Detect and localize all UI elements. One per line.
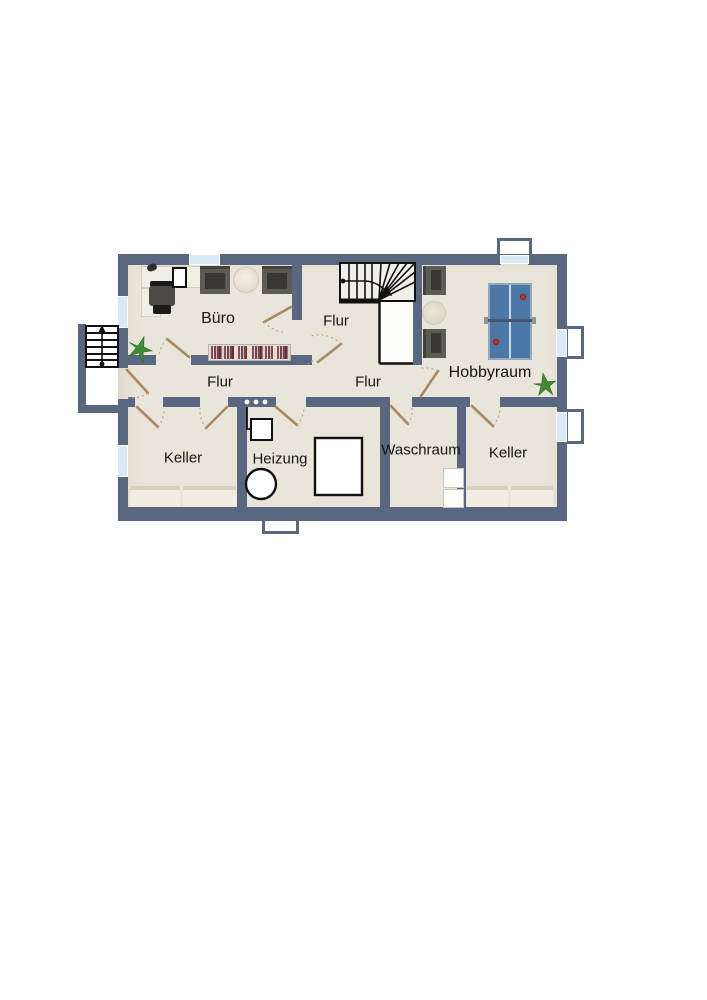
room-label-hobbyraum: Hobbyraum [449,364,532,382]
plant-icon [125,333,156,364]
doors [127,307,500,428]
meter-panel-dots [245,400,268,405]
room-label-heizung: Heizung [252,451,307,468]
boiler-icon [246,469,276,499]
room-label-flur-top: Flur [323,313,349,330]
room-label-keller-east: Keller [489,445,527,462]
room-label-flur-east: Flur [355,374,381,391]
room-label-buero: Büro [201,310,235,328]
plant-icon [532,371,558,397]
room-label-keller-west: Keller [164,450,202,467]
winder-stairs-icon [339,263,415,364]
exterior-stairs-icon [86,325,118,367]
plan-overlay [0,0,707,1000]
electrical-box-icon [251,419,272,440]
heating-tank-icon [315,438,362,495]
floor-plan: Büro Flur Flur Flur Hobbyraum Keller Hei… [0,0,707,1000]
room-label-flur-west: Flur [207,374,233,391]
room-label-waschraum: Waschraum [381,442,460,459]
